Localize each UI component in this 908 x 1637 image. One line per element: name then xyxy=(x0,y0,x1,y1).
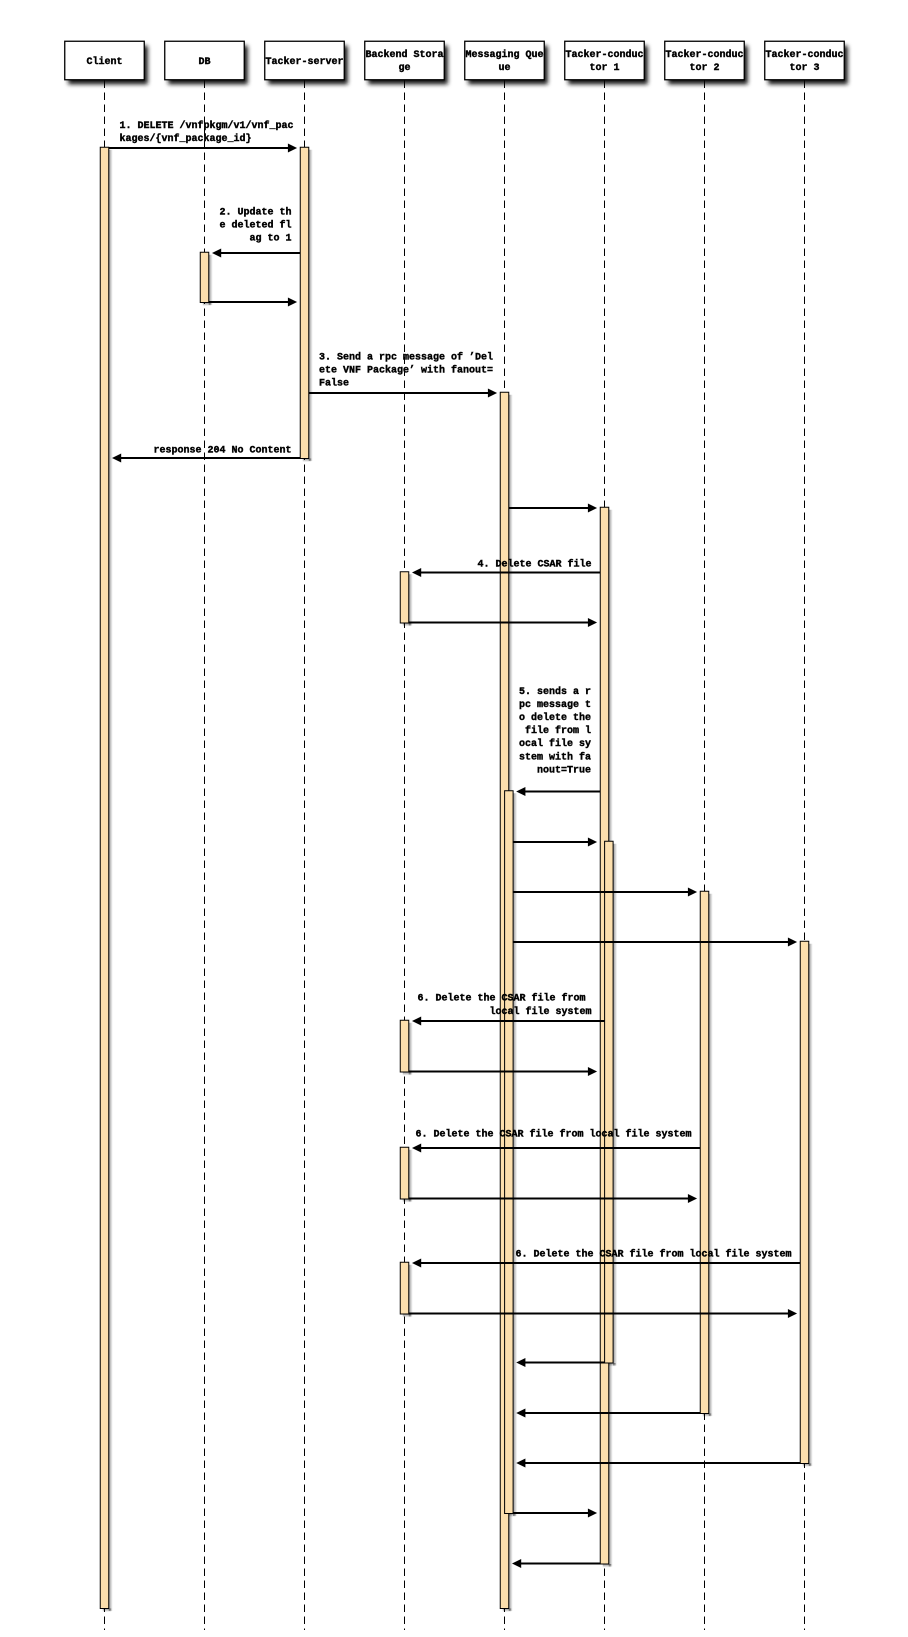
svg-text:Tacker-server: Tacker-server xyxy=(265,56,343,68)
svg-text:Tacker-conduc: Tacker-conduc xyxy=(565,49,643,61)
svg-text:4. Delete CSAR file: 4. Delete CSAR file xyxy=(477,559,591,571)
svg-text:local file system: local file system xyxy=(489,1006,591,1018)
svg-text:ge: ge xyxy=(398,63,410,74)
svg-text:False: False xyxy=(319,378,349,390)
svg-text:Messaging Que: Messaging Que xyxy=(465,49,543,61)
svg-text:o delete the: o delete the xyxy=(519,712,591,724)
svg-text:tor 2: tor 2 xyxy=(689,63,719,74)
svg-text:1. DELETE /vnfpkgm/v1/vnf_pac: 1. DELETE /vnfpkgm/v1/vnf_pac xyxy=(120,120,294,132)
svg-text:ete VNF Package’ with fanout=: ete VNF Package’ with fanout= xyxy=(319,365,493,377)
svg-text:tor 1: tor 1 xyxy=(589,63,619,74)
svg-text:Tacker-conduc: Tacker-conduc xyxy=(665,49,743,61)
svg-text:tor 3: tor 3 xyxy=(789,63,819,74)
svg-text:pc message t: pc message t xyxy=(519,700,591,711)
svg-text:Backend Stora: Backend Stora xyxy=(365,49,443,61)
svg-text:kages/{vnf_package_id}: kages/{vnf_package_id} xyxy=(120,133,252,145)
svg-text:stem with fa: stem with fa xyxy=(519,751,591,763)
svg-text:nout=True: nout=True xyxy=(537,765,591,776)
svg-text:file from l: file from l xyxy=(519,725,591,737)
svg-text:ue: ue xyxy=(498,63,510,74)
svg-text:e deleted fl: e deleted fl xyxy=(219,220,291,232)
svg-text:response 204 No Content: response 204 No Content xyxy=(153,446,291,457)
svg-text:6. Delete the CSAR file from l: 6. Delete the CSAR file from local file … xyxy=(415,1129,691,1141)
svg-text:6. Delete the CSAR file from: 6. Delete the CSAR file from xyxy=(417,993,591,1005)
svg-text:5. sends a r: 5. sends a r xyxy=(519,686,591,698)
svg-text:ocal file sy: ocal file sy xyxy=(519,738,591,750)
svg-text:2. Update th: 2. Update th xyxy=(219,207,291,219)
svg-text:DB: DB xyxy=(198,57,210,68)
svg-text:3. Send a rpc message of ’Del: 3. Send a rpc message of ’Del xyxy=(319,352,493,364)
svg-text:6. Delete the CSAR file from l: 6. Delete the CSAR file from local file … xyxy=(515,1249,791,1261)
svg-text:Tacker-conduc: Tacker-conduc xyxy=(765,49,843,61)
svg-text:Client: Client xyxy=(86,56,122,68)
svg-text:ag to 1: ag to 1 xyxy=(249,234,291,245)
